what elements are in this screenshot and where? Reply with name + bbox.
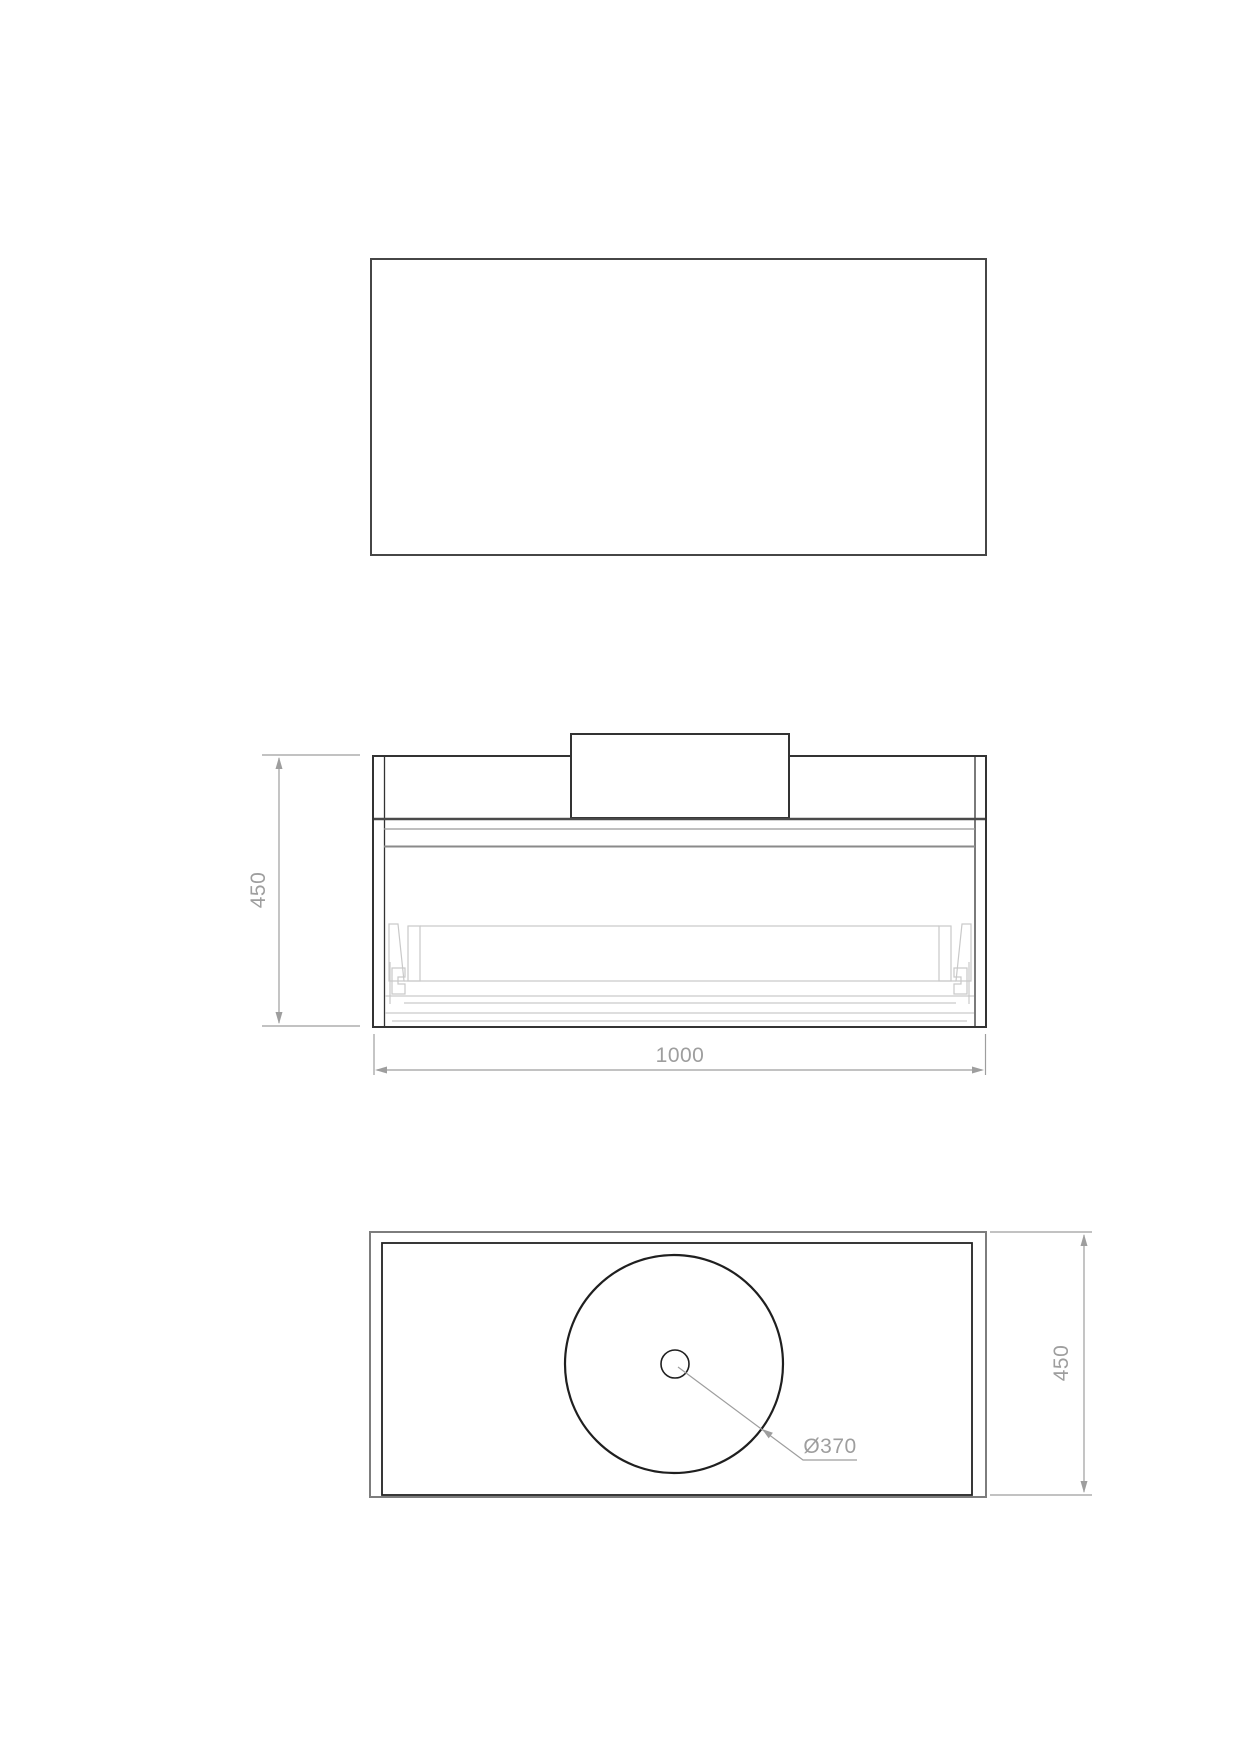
plan-depth-dimension bbox=[990, 1232, 1092, 1495]
arrow-right-icon bbox=[972, 1067, 984, 1074]
arrow-down-icon bbox=[276, 1012, 283, 1024]
basin-front-outline bbox=[571, 734, 789, 818]
technical-drawing-canvas: 450 1000 Ø370 bbox=[0, 0, 1242, 1755]
plan-depth-dimension-label: 450 bbox=[1050, 1345, 1073, 1382]
arrow-up-icon bbox=[1081, 1234, 1088, 1246]
front-height-dimension-label: 450 bbox=[247, 872, 270, 909]
arrow-down-icon bbox=[1081, 1481, 1088, 1493]
top-view bbox=[371, 259, 986, 555]
arrow-left-icon bbox=[375, 1067, 387, 1074]
arrow-up-icon bbox=[276, 757, 283, 769]
front-height-dimension bbox=[262, 755, 360, 1026]
front-elevation-view: 450 1000 bbox=[247, 734, 986, 1075]
plan-view: Ø370 450 bbox=[370, 1232, 1092, 1497]
drawing-sheet: 450 1000 Ø370 bbox=[0, 0, 1242, 1755]
drain-hole-circle bbox=[661, 1350, 689, 1378]
basin-diameter-label: Ø370 bbox=[803, 1435, 856, 1458]
top-view-outline bbox=[371, 259, 986, 555]
front-width-dimension-label: 1000 bbox=[656, 1044, 705, 1067]
